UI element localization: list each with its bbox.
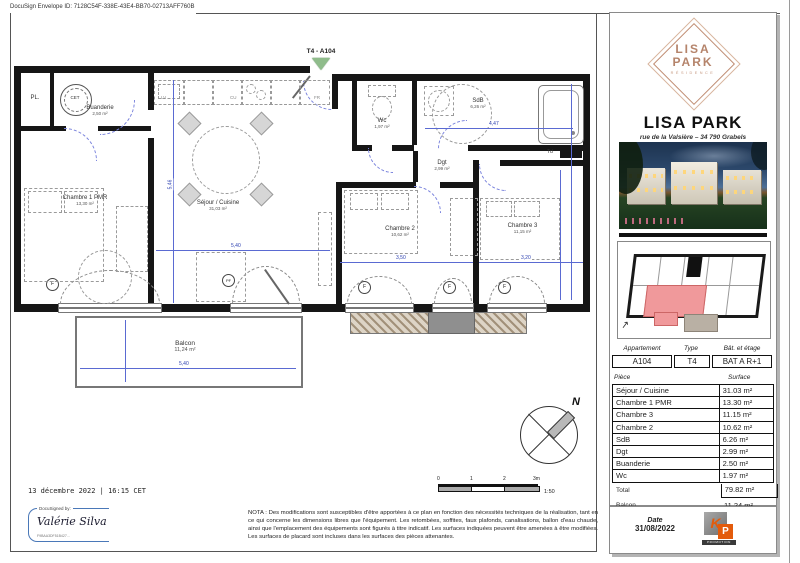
pillow — [381, 193, 409, 210]
scale-tick-label: 1 — [470, 476, 473, 482]
wall — [413, 151, 418, 182]
key-plan: ↗ — [617, 241, 771, 339]
room-label: PL. — [21, 95, 49, 102]
scale-bar: 0 1 2 3m 1:50 — [438, 476, 568, 496]
lisa-park-logo: LISA PARK RÉSIDENCE — [610, 19, 776, 115]
table-row: Séjour / Cuisine31.03 m² — [613, 385, 773, 397]
compass: N — [520, 404, 582, 466]
pillow — [514, 201, 540, 217]
apartment-building-floor: BAT A R+1 — [712, 355, 772, 368]
col-header: Appartement — [612, 345, 672, 352]
signer-name: Valérie Silva — [37, 515, 107, 528]
dimension-line — [80, 368, 296, 369]
table-row: Chambre 210.62 m² — [613, 422, 773, 434]
table-row: Chambre 1 PMR13.30 m² — [613, 397, 773, 409]
dimension-line — [156, 250, 330, 251]
kitchen-label-cu: CU — [230, 96, 237, 101]
chair — [249, 182, 273, 206]
window-swing — [347, 276, 412, 304]
chair — [177, 111, 201, 135]
dimension-label: 5,46 — [168, 179, 173, 191]
date-value: 31/08/2022 — [622, 524, 688, 533]
info-panel: LISA PARK RÉSIDENCE LISA PARK rue de la … — [609, 12, 777, 506]
wall — [336, 182, 416, 188]
logo-line3: RÉSIDENCE — [610, 71, 776, 75]
dimension-line — [173, 80, 174, 303]
neighbour-terrace-key — [684, 314, 718, 332]
window — [58, 303, 162, 313]
scale-ratio: 1:50 — [544, 489, 555, 495]
room-label: Chambre 210,62 m² — [370, 226, 430, 238]
sofa — [196, 252, 246, 302]
north-arrow-icon: ↗ — [620, 319, 630, 331]
cet-label: CET — [66, 95, 84, 100]
dimension-label: 3,50 — [395, 256, 407, 261]
total-value: 79.82 m² — [721, 484, 778, 498]
room-label: Dgt2,99 m² — [427, 160, 457, 172]
building-photo — [619, 142, 767, 229]
cooktop — [256, 90, 266, 100]
dimension-line — [340, 262, 473, 263]
dimension-line — [425, 128, 573, 129]
french-door — [230, 303, 302, 313]
col-header: Bât. et étage — [710, 345, 774, 352]
total-label: Total — [616, 487, 630, 494]
door-swing — [479, 164, 506, 191]
apartment-balcony-highlight — [654, 312, 678, 326]
room-label: Séjour / Cuisine31,03 m² — [183, 200, 253, 212]
signed-by-label: DocuSigned by: — [37, 506, 73, 511]
date-panel: Date 31/08/2022 K P PROMOTION — [609, 506, 777, 554]
chair — [249, 111, 273, 135]
kp-logo-sub: PROMOTION — [702, 540, 736, 545]
apartment-table-headers: Appartement Type Bât. et étage — [612, 345, 774, 352]
wall — [583, 74, 590, 312]
neighbour-block — [428, 312, 475, 334]
entrance-marker-label: T4 - A104 — [288, 48, 354, 55]
col-header: Type — [672, 345, 710, 352]
wall — [50, 73, 54, 126]
kitchen-counter — [183, 80, 214, 105]
dimension-line — [125, 320, 126, 382]
turning-circle — [432, 84, 492, 144]
door-swing — [368, 148, 393, 173]
nota-text: NOTA : Des modifications sont susceptibl… — [248, 510, 598, 542]
apartment-number: A104 — [612, 355, 672, 368]
dimension-line — [479, 262, 583, 263]
wall — [14, 304, 58, 312]
logo-line2: PARK — [610, 56, 776, 69]
residence-title: LISA PARK — [610, 113, 776, 133]
kitchen-counter — [212, 80, 243, 105]
kitchen-label-lv: LV — [161, 96, 166, 101]
wall — [14, 66, 21, 312]
residence-address: rue de la Valsière – 34 790 Grabels — [610, 134, 776, 141]
table-row: SdB6.26 m² — [613, 434, 773, 446]
wall — [412, 81, 417, 145]
wall — [392, 145, 414, 151]
wall — [545, 304, 590, 312]
north-label: N — [572, 396, 580, 408]
col-header-piece: Pièce — [614, 374, 630, 381]
scale-tick-label: 0 — [437, 476, 440, 482]
room-label: Chambre 311,15 m² — [495, 223, 550, 235]
door-swing — [64, 128, 97, 161]
wall — [352, 81, 357, 145]
date-label: Date — [622, 517, 688, 524]
col-header-surface: Surface — [728, 374, 750, 381]
page-edge — [789, 0, 790, 563]
docusign-signature-stamp: DocuSigned by: Valérie Silva F9BAA3DF51B… — [28, 508, 109, 542]
wall — [14, 66, 310, 73]
wardrobe — [450, 198, 478, 256]
cooktop — [246, 84, 256, 94]
signature-id: F9BAA3DF51B427... — [37, 534, 70, 538]
scale-tick-label: 2 — [503, 476, 506, 482]
sheet-border-bottom — [10, 551, 597, 552]
wall — [21, 126, 66, 131]
kp-promotion-logo: K P PROMOTION — [702, 512, 742, 548]
room-label: Balcon11,24 m² — [155, 340, 215, 353]
wall — [332, 74, 338, 109]
toilet — [372, 96, 392, 120]
apartment-type: T4 — [674, 355, 710, 368]
table-row: Dgt2.99 m² — [613, 446, 773, 458]
window-f-marker: F — [498, 281, 511, 294]
dimension-label: 5,40 — [178, 362, 190, 367]
wall — [160, 304, 230, 312]
tv-unit — [318, 212, 332, 286]
floor-plan: T4 - A104 Td — [0, 0, 600, 480]
surface-table: Séjour / Cuisine31.03 m² Chambre 1 PMR13… — [612, 384, 774, 483]
window-swing — [489, 276, 545, 304]
pillow — [486, 201, 512, 217]
dining-table — [192, 126, 260, 194]
stairwell — [686, 257, 702, 277]
window-f-marker: F — [358, 281, 371, 294]
room-label: Wc1,97 m² — [367, 118, 397, 130]
kitchen-label-fr: FR — [314, 96, 320, 101]
wall — [332, 74, 590, 81]
room-label: Buanderie2,50 m² — [75, 105, 125, 117]
pillow — [350, 193, 378, 210]
room-label: SdB6,26 m² — [463, 98, 493, 110]
table-row: Chambre 311.15 m² — [613, 409, 773, 421]
divider — [619, 233, 767, 237]
table-row: Wc1.97 m² — [613, 470, 773, 482]
bathtub — [538, 85, 584, 144]
room-label: Chambre 1 PMR13,30 m² — [50, 195, 120, 207]
signing-timestamp: 13 décembre 2022 | 16:15 CET — [28, 487, 146, 495]
wall — [412, 304, 432, 312]
wall — [336, 182, 342, 312]
turning-circle — [78, 250, 132, 304]
wall — [500, 160, 590, 166]
dimension-label: 4,47 — [488, 122, 500, 127]
td-label: Td — [547, 149, 553, 155]
scale-tick-label: 3m — [533, 476, 540, 482]
apartment-table-values: A104 T4 BAT A R+1 — [612, 355, 774, 368]
dimension-label: 3,20 — [520, 256, 532, 261]
kitchen-counter — [299, 80, 330, 105]
docusign-pdf-page: DocuSign Envelope ID: 7128C54F-338E-43E4… — [0, 0, 800, 563]
dimension-line — [560, 170, 561, 300]
entrance-triangle-icon — [312, 58, 330, 70]
door-swing — [414, 186, 441, 213]
dimension-line — [571, 84, 572, 300]
kitchen-counter — [270, 80, 301, 105]
dimension-label: 5,40 — [230, 244, 242, 249]
table-row: Buanderie2.50 m² — [613, 458, 773, 470]
window-f-marker: F — [443, 281, 456, 294]
kp-logo-p: P — [718, 524, 733, 539]
